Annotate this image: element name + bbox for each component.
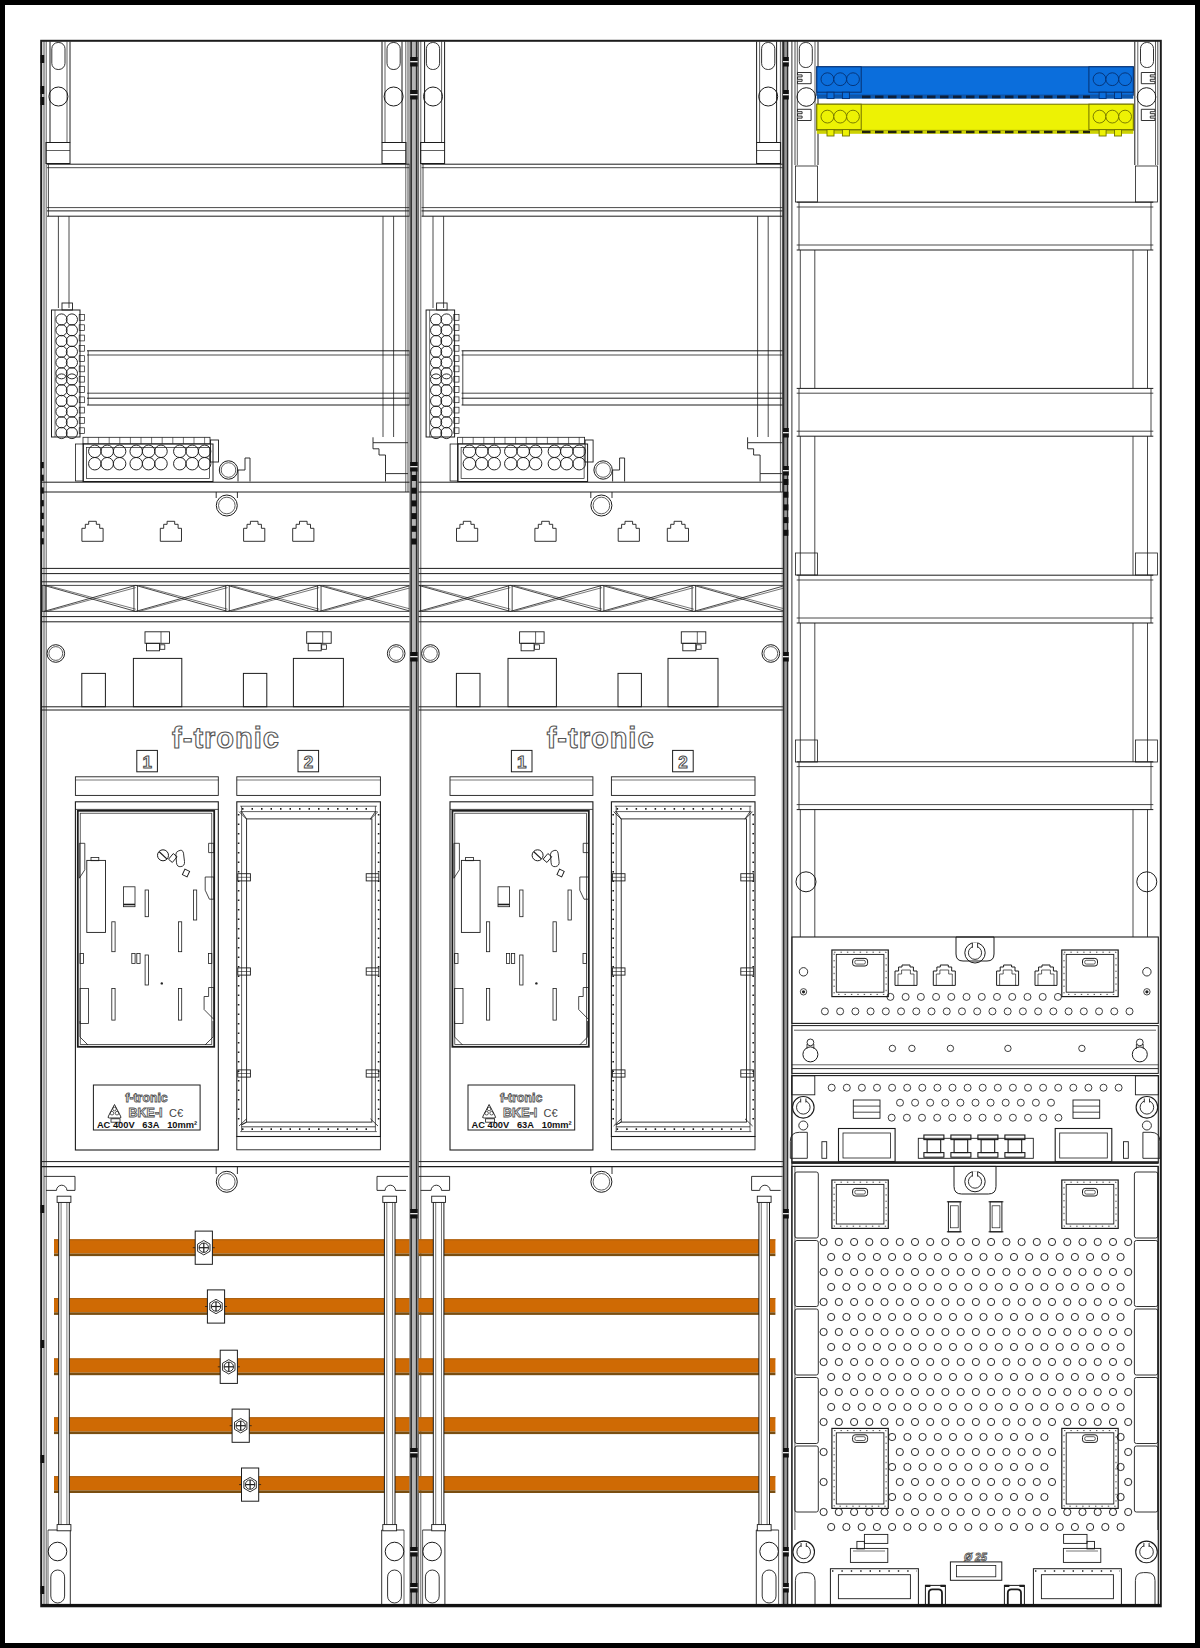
svg-text:Ø 25: Ø 25 [964, 1551, 987, 1563]
